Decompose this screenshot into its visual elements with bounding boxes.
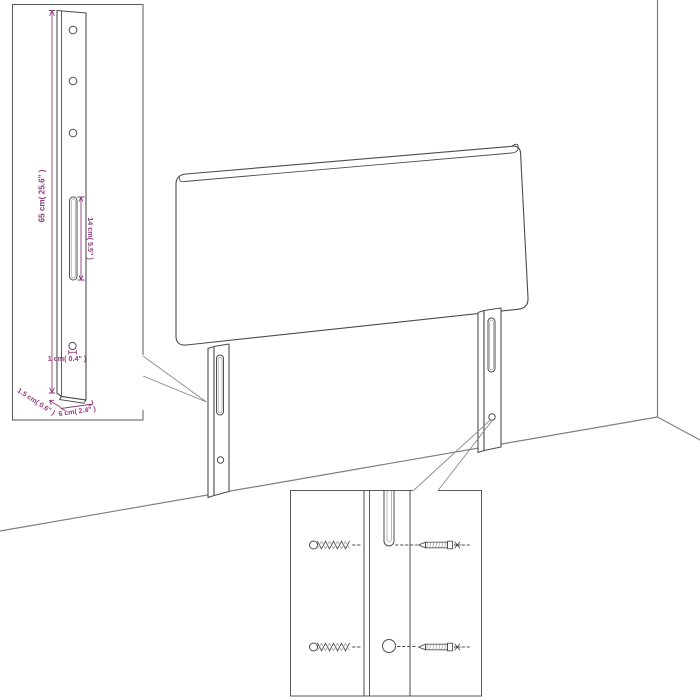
floor-line-right: [658, 417, 700, 440]
threaded-insert-top: [310, 541, 363, 549]
inset2-slot-inner: [387, 491, 391, 542]
inset2-leg-drawing: [364, 491, 417, 697]
dimension-leg-width: 6 cm( 2.4" ): [58, 400, 96, 418]
screw-bottom: [419, 643, 470, 651]
headboard-panel: [176, 144, 528, 345]
headboard-panel-outline: [176, 146, 528, 345]
dimension-height-label: 65 cm( 25.6" ): [38, 169, 47, 222]
floor-line-left: [0, 417, 658, 531]
inset2-hole: [383, 640, 396, 653]
headboard-leg-right: [478, 308, 501, 453]
dimension-height: 65 cm( 25.6" ): [38, 11, 55, 394]
dimension-side-depth: 1.5 cm( 0.6" ): [16, 387, 61, 417]
leg-left-side-face: [208, 347, 214, 498]
threaded-insert-bottom: [310, 643, 363, 651]
screw-top: [419, 541, 470, 549]
inset-leg-dimensions: 65 cm( 25.6" ) 14 cm( 5.5" ) 1 cm( 0.4" …: [13, 5, 144, 421]
headboard-assembly-diagram: 65 cm( 25.6" ) 14 cm( 5.5" ) 1 cm( 0.4" …: [0, 0, 700, 700]
inset2-border: [291, 491, 482, 697]
inset2-slot: [384, 491, 394, 547]
leg-right-front-face: [484, 308, 501, 451]
dimension-hole-label: 1 cm( 0.4" ): [48, 354, 87, 363]
callout-lines: [143, 356, 493, 491]
callout-inset1-to-left-leg: [143, 356, 207, 402]
dimension-height-line: [49, 11, 55, 394]
leg-right-side-face: [478, 311, 484, 453]
dimension-slot-label: 14 cm( 5.5" ): [86, 217, 95, 260]
inset1-leg-drawing: [57, 11, 86, 404]
dimension-side-depth-line: [50, 400, 62, 407]
headboard-leg-left: [208, 344, 229, 498]
inset-fastener-detail: [291, 491, 482, 697]
diagram-canvas: 65 cm( 25.6" ) 14 cm( 5.5" ) 1 cm( 0.4" …: [0, 0, 700, 700]
